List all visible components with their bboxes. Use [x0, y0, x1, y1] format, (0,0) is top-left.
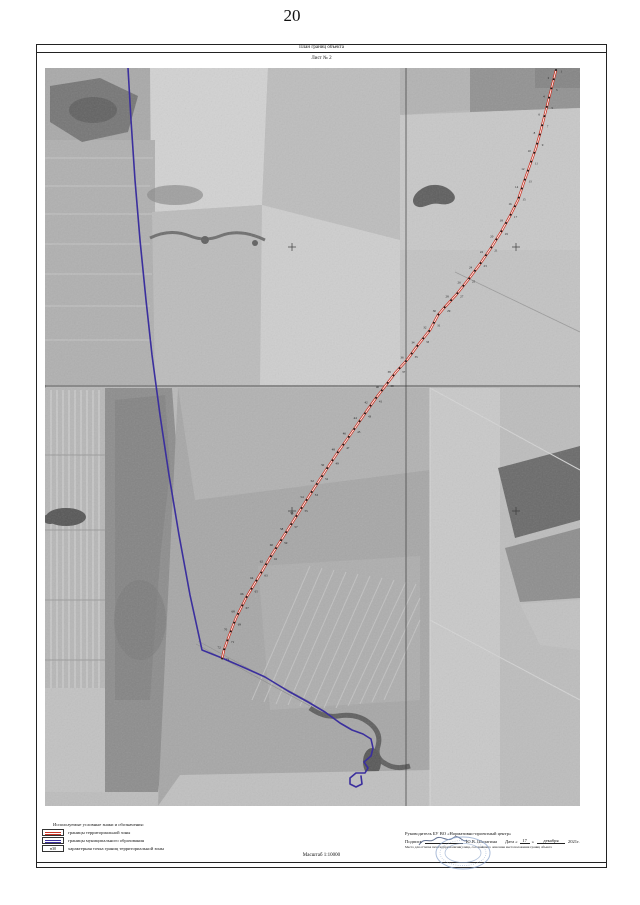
legend-symbol-characteristic-point: н30 — [42, 845, 64, 852]
svg-text:26: 26 — [457, 280, 461, 284]
svg-text:46: 46 — [343, 432, 347, 436]
sheet-number: Лист № 2 — [36, 56, 607, 61]
svg-text:71: 71 — [231, 640, 235, 644]
legend-symbol-territorial-zone — [42, 829, 64, 836]
svg-text:59: 59 — [284, 541, 288, 545]
svg-text:62: 62 — [260, 560, 264, 564]
svg-text:51: 51 — [325, 477, 329, 481]
signature-line: Подпись Ю.В. Шалагина Дата « 17 » декабр… — [405, 838, 580, 844]
svg-text:65: 65 — [255, 590, 259, 594]
svg-text:34: 34 — [411, 341, 415, 345]
svg-text:61: 61 — [274, 557, 278, 561]
svg-text:22: 22 — [480, 250, 484, 254]
svg-text:68: 68 — [232, 609, 236, 613]
signatory-name: Ю.В. Шалагина — [466, 839, 497, 844]
signatory-title: Руководитель БУ ВО «Нормативно-проектный… — [405, 831, 511, 836]
svg-text:38: 38 — [387, 370, 391, 374]
svg-text:32: 32 — [423, 326, 427, 330]
date-day: 17 — [520, 838, 530, 844]
plan-title: План границ объекта — [36, 45, 607, 50]
svg-text:25: 25 — [472, 280, 476, 284]
svg-text:69: 69 — [238, 623, 242, 627]
podpis-label: Подпись — [405, 839, 422, 844]
svg-text:40: 40 — [376, 385, 380, 389]
svg-text:24: 24 — [469, 265, 473, 269]
svg-text:23: 23 — [484, 264, 488, 268]
red-line-swatch — [45, 834, 61, 835]
svg-text:64: 64 — [250, 576, 254, 580]
svg-text:70: 70 — [224, 627, 228, 631]
svg-text:8: 8 — [534, 131, 536, 135]
page-number: 20 — [270, 6, 314, 26]
red-line-swatch — [45, 832, 61, 833]
legend-label-characteristic-point: характерная точка границ территориальной… — [68, 846, 164, 851]
svg-text:45: 45 — [357, 430, 361, 434]
svg-text:53: 53 — [315, 493, 319, 497]
svg-text:36: 36 — [400, 355, 404, 359]
date-year: 2021г. — [568, 839, 580, 844]
svg-text:57: 57 — [294, 525, 298, 529]
svg-text:17: 17 — [514, 215, 518, 219]
svg-text:33: 33 — [426, 340, 430, 344]
svg-text:47: 47 — [346, 446, 350, 450]
svg-text:5: 5 — [551, 106, 553, 110]
svg-text:6: 6 — [538, 113, 540, 117]
svg-text:73: 73 — [226, 658, 230, 662]
svg-text:43: 43 — [368, 415, 372, 419]
legend-label-municipal-boundary: границы муниципального образования — [68, 838, 144, 843]
svg-text:60: 60 — [270, 543, 274, 547]
svg-text:4: 4 — [543, 94, 545, 98]
date-prefix: Дата « — [505, 839, 518, 844]
svg-text:67: 67 — [246, 606, 250, 610]
svg-text:37: 37 — [402, 370, 406, 374]
svg-text:41: 41 — [379, 399, 383, 403]
legend-symbol-municipal-boundary — [42, 837, 64, 844]
svg-text:9: 9 — [542, 143, 544, 147]
map-scale: Масштаб 1:10000 — [36, 853, 607, 858]
svg-text:31: 31 — [437, 323, 441, 327]
svg-text:42: 42 — [364, 400, 368, 404]
svg-text:13: 13 — [528, 179, 532, 183]
svg-text:29: 29 — [447, 309, 451, 313]
svg-text:30: 30 — [433, 309, 437, 313]
svg-text:10: 10 — [528, 149, 532, 153]
svg-text:28: 28 — [445, 295, 449, 299]
blue-line-swatch — [45, 840, 61, 841]
svg-text:66: 66 — [240, 592, 244, 596]
svg-text:1: 1 — [561, 69, 563, 73]
svg-text:55: 55 — [305, 509, 309, 513]
svg-text:63: 63 — [264, 573, 268, 577]
footer-separator — [36, 862, 607, 863]
svg-text:20: 20 — [490, 234, 494, 238]
signature-blank — [425, 838, 463, 844]
svg-text:3: 3 — [556, 88, 558, 92]
date-month: декабря — [537, 838, 565, 844]
svg-text:12: 12 — [521, 167, 525, 171]
svg-text:27: 27 — [460, 295, 464, 299]
svg-text:18: 18 — [500, 218, 504, 222]
header-separator — [36, 52, 607, 53]
legend-title: Используемые условные знаки и обозначени… — [53, 822, 144, 827]
svg-text:50: 50 — [321, 463, 325, 467]
blue-line-swatch — [45, 842, 61, 843]
svg-text:49: 49 — [336, 461, 340, 465]
date-close-quote: » — [532, 839, 534, 844]
svg-text:54: 54 — [300, 495, 304, 499]
svg-text:11: 11 — [535, 161, 538, 165]
svg-text:56: 56 — [290, 511, 294, 515]
svg-text:16: 16 — [508, 202, 512, 206]
svg-text:44: 44 — [354, 416, 358, 420]
svg-text:35: 35 — [415, 355, 419, 359]
svg-text:14: 14 — [515, 185, 519, 189]
svg-text:39: 39 — [390, 384, 394, 388]
svg-text:2: 2 — [548, 76, 550, 80]
document-page: 20 План границ объекта Лист № 2 — [0, 0, 640, 905]
stamp-note: Место для оттиска печати (при наличии) л… — [405, 845, 607, 849]
map-area: 1234567891011121314151617181920212223242… — [45, 68, 580, 806]
point-label-sample: н30 — [43, 846, 63, 852]
legend-label-territorial-zone: границы территориальной зоны — [68, 830, 130, 835]
svg-text:72: 72 — [217, 645, 221, 649]
svg-text:21: 21 — [494, 248, 498, 252]
svg-text:7: 7 — [547, 125, 549, 129]
boundary-overlay: 1234567891011121314151617181920212223242… — [45, 68, 580, 806]
svg-text:19: 19 — [505, 232, 509, 236]
svg-text:58: 58 — [280, 527, 284, 531]
svg-text:15: 15 — [522, 197, 526, 201]
svg-text:48: 48 — [332, 447, 336, 451]
svg-text:52: 52 — [311, 479, 315, 483]
